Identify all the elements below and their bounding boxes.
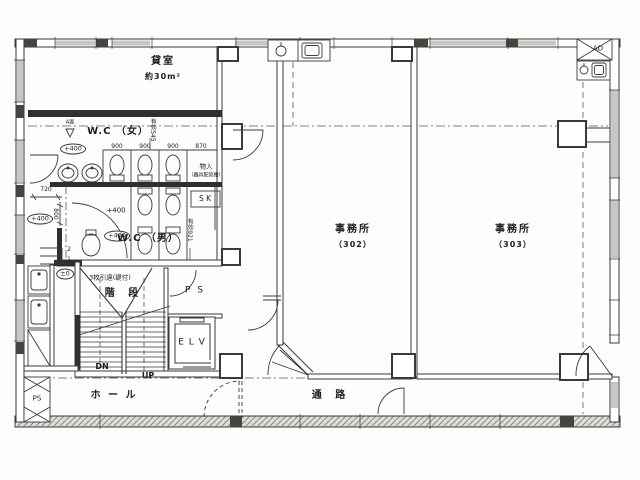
level-plus400-2: +400 xyxy=(27,214,53,225)
step-num-1: 1 xyxy=(67,257,71,263)
stairs-up-label: UP xyxy=(142,372,154,380)
section-marker-label: A面 xyxy=(66,120,74,125)
room-area-rental: 約30m² xyxy=(145,73,181,81)
kitchenette-303-icon xyxy=(577,61,610,80)
dim-stall-2: 900 xyxy=(139,144,150,150)
washbasin-icon xyxy=(58,164,102,182)
kitchenette-302-icon xyxy=(268,40,330,61)
step-num-2: 2 xyxy=(67,247,71,253)
pipe-shaft-label: PS xyxy=(33,395,42,402)
stairs-down-label: DN xyxy=(95,363,108,371)
room-number-office302: （302） xyxy=(334,241,372,249)
stairs-linework xyxy=(76,268,170,374)
room-label-hall: ホ ー ル xyxy=(91,391,138,402)
room-label-wc-men: W.C （男） xyxy=(117,234,179,245)
level-plus400-1: +400 xyxy=(60,144,86,155)
room-label-sk: S K xyxy=(199,195,211,203)
room-number-office303: （303） xyxy=(494,241,532,249)
level-plus400-3: +400 xyxy=(106,207,125,214)
dim-720: 720 xyxy=(40,187,51,193)
room-note-closet: （器具配管棚） xyxy=(188,173,223,178)
room-label-closet: 物入 xyxy=(200,164,213,171)
room-label-stairs: 階 段 xyxy=(105,289,143,300)
dim-stall-3: 900 xyxy=(167,144,178,150)
dim-eff921: 有効921 xyxy=(186,218,192,241)
stairs-door-note: 3枚引違(鍵付) xyxy=(89,275,131,282)
dim-eff545: 有効545 xyxy=(149,118,155,141)
level-zero: ±0 xyxy=(56,269,74,280)
room-label-rental: 貸室 xyxy=(151,57,175,68)
room-label-office302: 事務所 xyxy=(335,225,371,236)
room-label-corridor: 通 路 xyxy=(312,391,350,402)
floor-plan: 貸室 約30m² W.C （女） A面 有効545 900 900 900 87… xyxy=(0,0,640,480)
section-marker-icon xyxy=(66,129,74,137)
duct-shaft-label: AD xyxy=(593,45,603,52)
service-sink-icons xyxy=(28,266,50,366)
dim-stall-4: 870 xyxy=(195,144,206,150)
room-label-office303: 事務所 xyxy=(495,225,531,236)
urinal-icon xyxy=(82,230,100,256)
room-label-elevator: E L V xyxy=(178,338,206,347)
floor-plan-linework xyxy=(0,0,640,480)
dim-stall-1: 900 xyxy=(111,144,122,150)
room-label-wc-women: W.C （女） xyxy=(87,127,149,138)
room-label-ps: P S xyxy=(185,286,205,295)
